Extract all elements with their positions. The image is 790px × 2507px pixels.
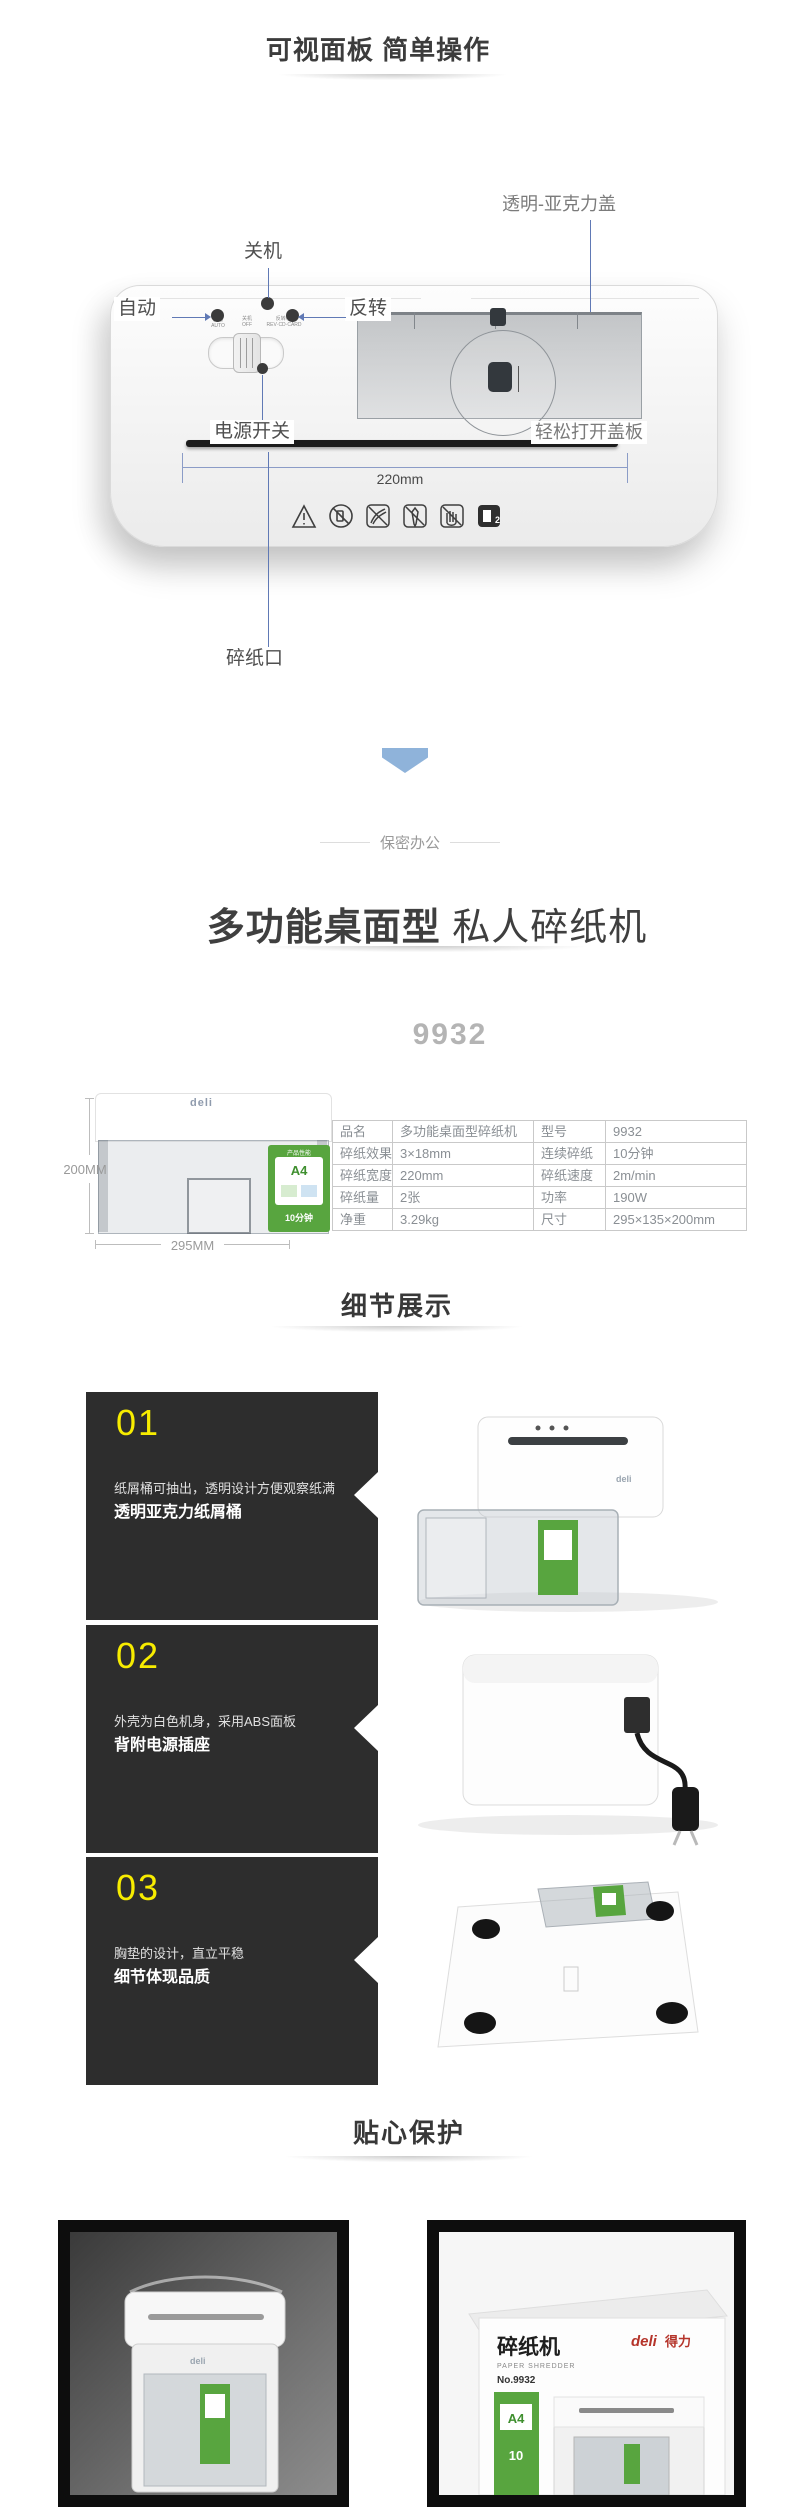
details-heading: 细节展示 [0,1286,790,1323]
leader-acrylic [590,220,591,312]
panel-seam [471,298,699,299]
sticker-pictogram [301,1185,317,1197]
caution-triangle-icon [293,506,315,527]
machine-head [95,1093,332,1142]
spec-value: 10分钟 [606,1143,747,1165]
spec-label: 净重 [333,1209,393,1231]
sticker-a4: A4 [275,1163,323,1178]
svg-text:2: 2 [495,515,500,525]
svg-text:得力: 得力 [664,2334,691,2349]
divider-label: 保密办公 [380,832,440,853]
protection-heading-shadow [230,2156,588,2165]
table-row: 净重 3.29kg 尺寸 295×135×200mm [333,1209,747,1231]
leader-auto-arrow [205,313,211,321]
product-detail-page: 可视面板 简单操作 自动AUTO 关机OFF 反转/光REV·CD·CARD 2… [0,0,790,2507]
spec-value: 2m/min [606,1165,747,1187]
spec-value: 9932 [606,1121,747,1143]
detail-photo-rear [388,1625,748,1853]
dim-tick [85,1098,94,1099]
cover-rib [414,312,415,329]
details-heading-shadow [215,1326,579,1335]
leader-off [268,268,269,298]
spec-label: 品名 [333,1121,393,1143]
power-switch-dot [257,363,268,374]
detail-notch [354,1705,378,1751]
table-row: 品名 多功能桌面型碎纸机 型号 9932 [333,1121,747,1143]
callout-open-cover: 轻松打开盖板 [531,421,647,444]
detail-block-2: 02 外壳为白色机身，采用ABS面板 背附电源插座 [86,1625,378,1853]
detail-block-1: 01 纸屑桶可抽出，透明设计方便观察纸满 透明亚克力纸屑桶 [86,1392,378,1620]
dim-tick [95,1240,96,1249]
svg-text:10: 10 [509,2448,523,2463]
spec-label: 碎纸效果 [333,1143,393,1165]
spec-value: 多功能桌面型碎纸机 [393,1121,534,1143]
spec-value: 3×18mm [393,1143,534,1165]
photo-retail-box: 碎纸机 PAPER SHREDDER No.9932 deli 得力 A4 10 [427,2220,746,2507]
svg-text:A4: A4 [508,2411,525,2426]
svg-text:deli: deli [190,2356,206,2366]
auto-indicator-dot [211,309,224,322]
detail-text-bold: 透明亚克力纸屑桶 [114,1498,242,1522]
spec-value: 220mm [393,1165,534,1187]
detail-notch [354,1472,378,1518]
width-dimension-label: 220mm [360,471,440,487]
latch-icon [490,308,506,326]
callout-reverse: 反转 [345,297,391,321]
detail-photo-bin: deli [388,1392,748,1620]
sticker-pictogram [281,1185,297,1197]
detail-text: 纸屑桶可抽出，透明设计方便观察纸满 [114,1478,335,1497]
spec-label: 连续碎纸 [534,1143,606,1165]
detail-number: 02 [116,1635,160,1677]
protection-heading: 贴心保护 [14,2113,790,2150]
detail-number: 03 [116,1867,160,1909]
panel-print-off: 关机OFF [233,317,261,328]
callout-power-switch: 电源开关 [210,420,294,444]
height-dim-line [89,1183,90,1233]
no-aerosol-icon [330,505,352,527]
model-number: 9932 [300,1018,600,1052]
latch-zoomed-icon [488,362,512,392]
width-dim-line [224,1244,290,1245]
detail-text: 胸垫的设计，直立平稳 [114,1943,244,1962]
photo-shredder-dark: deli [58,2220,349,2507]
spec-value: 3.29kg [393,1209,534,1231]
spec-label: 型号 [534,1121,606,1143]
warning-icons-row: 2 [291,503,516,531]
detail-notch [354,1937,378,1983]
width-dimension-line [182,467,628,468]
table-row: 碎纸量 2张 功率 190W [333,1187,747,1209]
spec-table: 品名 多功能桌面型碎纸机 型号 9932 碎纸效果 3×18mm 连续碎纸 10… [332,1120,747,1231]
spec-label: 碎纸速度 [534,1165,606,1187]
detail-block-3: 03 胸垫的设计，直立平稳 细节体现品质 [86,1857,378,2085]
spec-value: 2张 [393,1187,534,1209]
bin-inner-frame [187,1178,251,1234]
section-divider: 保密办公 [300,832,520,853]
spec-label: 碎纸宽度 [333,1165,393,1187]
detail-text-bold: 细节体现品质 [114,1963,210,1987]
sticker-title: 产品性能 [268,1148,330,1157]
callout-off: 关机 [240,240,286,264]
no-tie-icon [404,505,426,527]
chevron-down-icon [382,748,428,773]
table-row: 碎纸效果 3×18mm 连续碎纸 10分钟 [333,1143,747,1165]
svg-text:deli: deli [631,2333,658,2350]
deli-logo: deli [190,1097,213,1109]
height-dim-line [89,1098,90,1155]
bin-edge [98,1140,108,1232]
detail-text: 外壳为白色机身，采用ABS面板 [114,1711,296,1730]
dimension-tick [182,453,183,483]
spec-sticker: 产品性能 A4 10分钟 [268,1145,330,1232]
width-dim-label: 295MM [161,1238,224,1253]
latch-mark [518,366,519,392]
svg-text:碎纸机: 碎纸机 [497,2335,560,2359]
product-title-shadow [190,946,660,955]
cover-rib [577,312,578,329]
off-indicator-dot [261,297,274,310]
leader-paper-slot [268,452,269,648]
detail-photo-bottom [388,1857,748,2085]
no-hand-icon [441,505,463,527]
width-dim-line [95,1244,161,1245]
spec-label: 尺寸 [534,1209,606,1231]
leader-reverse [304,317,346,318]
dim-tick [85,1233,94,1234]
sticker-minutes: 10分钟 [268,1211,330,1224]
leader-auto [172,317,208,318]
spec-label: 碎纸量 [333,1187,393,1209]
callout-paper-slot: 碎纸口 [222,647,287,671]
spec-value: 190W [606,1187,747,1209]
dim-tick [289,1240,290,1249]
leader-power [262,375,263,422]
detail-text-bold: 背附电源插座 [114,1731,210,1755]
spec-label: 功率 [534,1187,606,1209]
svg-text:deli: deli [616,1474,632,1484]
callout-acrylic-cover: 透明-亚克力盖 [498,193,620,216]
svg-text:No.9932: No.9932 [497,2375,536,2386]
product-front-photo: deli 产品性能 A4 10分钟 [95,1093,332,1238]
divider-line [450,842,500,843]
no-hair-icon [367,505,389,527]
sticker-panel: A4 [275,1157,323,1205]
divider-line [320,842,370,843]
leader-reverse-arrow [298,313,304,321]
sheet-capacity-icon: 2 [478,505,500,527]
svg-text:PAPER SHREDDER: PAPER SHREDDER [497,2363,575,2370]
title-shadow [228,74,558,83]
product-title: 多功能桌面型 私人碎纸机 [64,896,790,951]
detail-number: 01 [116,1402,160,1444]
callout-auto: 自动 [114,297,160,321]
page-title: 可视面板 简单操作 [0,30,756,67]
table-row: 碎纸宽度 220mm 碎纸速度 2m/min [333,1165,747,1187]
height-dim-label: 200MM [58,1162,112,1177]
spec-value: 295×135×200mm [606,1209,747,1231]
dimension-tick [627,453,628,483]
